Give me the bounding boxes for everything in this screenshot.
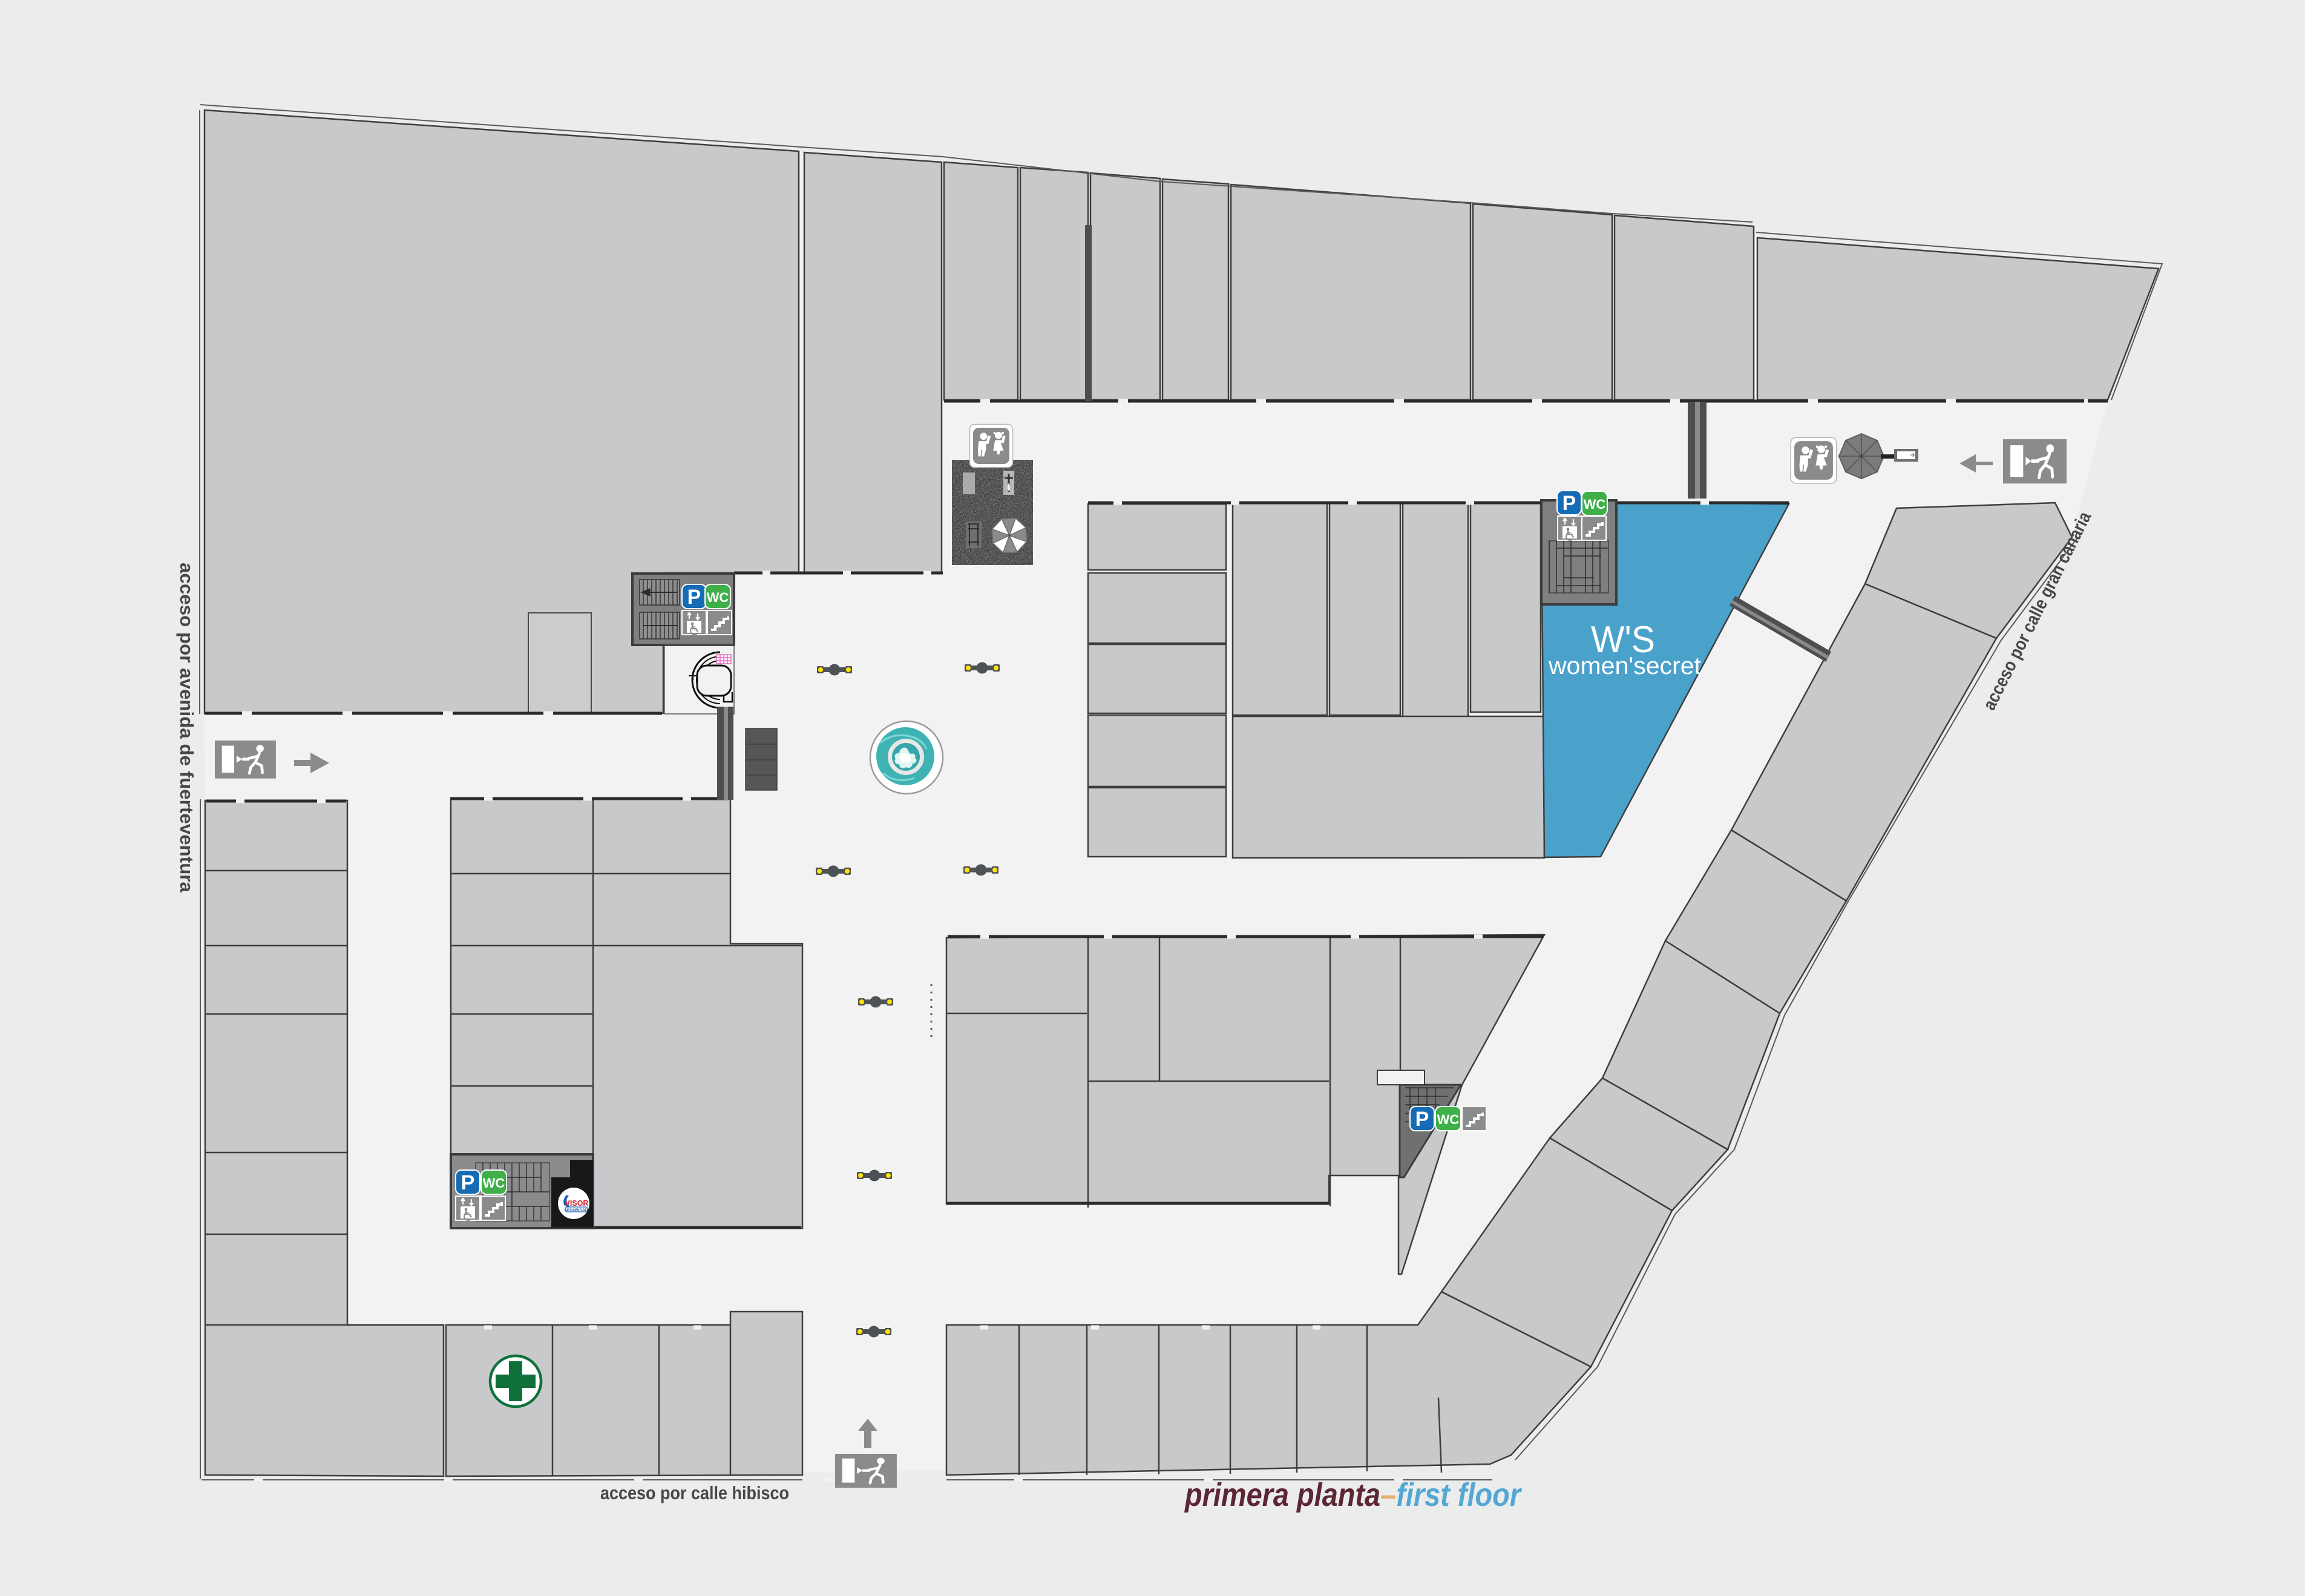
svg-text:acceso por avenida de fuerteve: acceso por avenida de fuerteventura (176, 563, 197, 893)
svg-text:primera planta–first floor: primera planta–first floor (1184, 1477, 1522, 1513)
svg-text:acceso por calle hibisco: acceso por calle hibisco (600, 1482, 789, 1503)
svg-text:VISOR: VISOR (565, 1199, 589, 1208)
svg-text:SEGURIDAD: SEGURIDAD (564, 1208, 588, 1212)
svg-text:women'secret: women'secret (1548, 653, 1701, 679)
